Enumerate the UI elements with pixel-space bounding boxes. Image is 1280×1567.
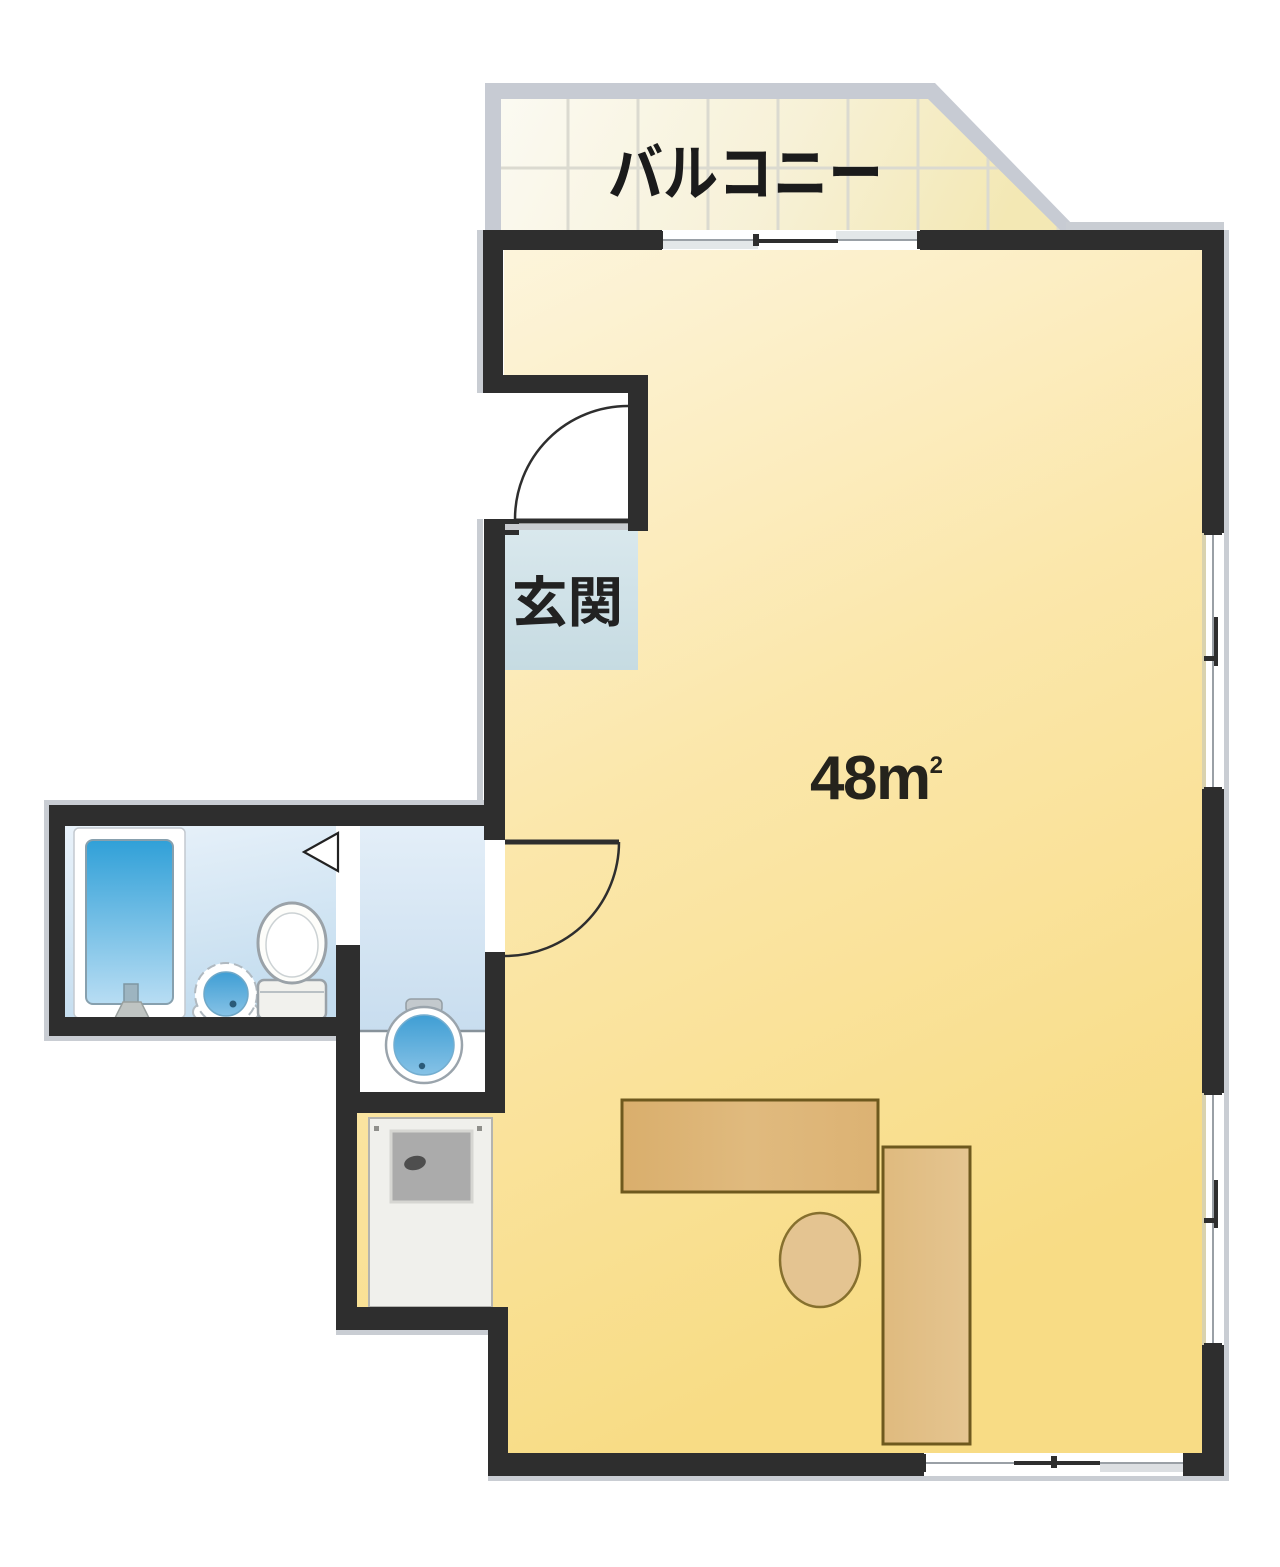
svg-text:48m2: 48m2 [810, 744, 943, 813]
